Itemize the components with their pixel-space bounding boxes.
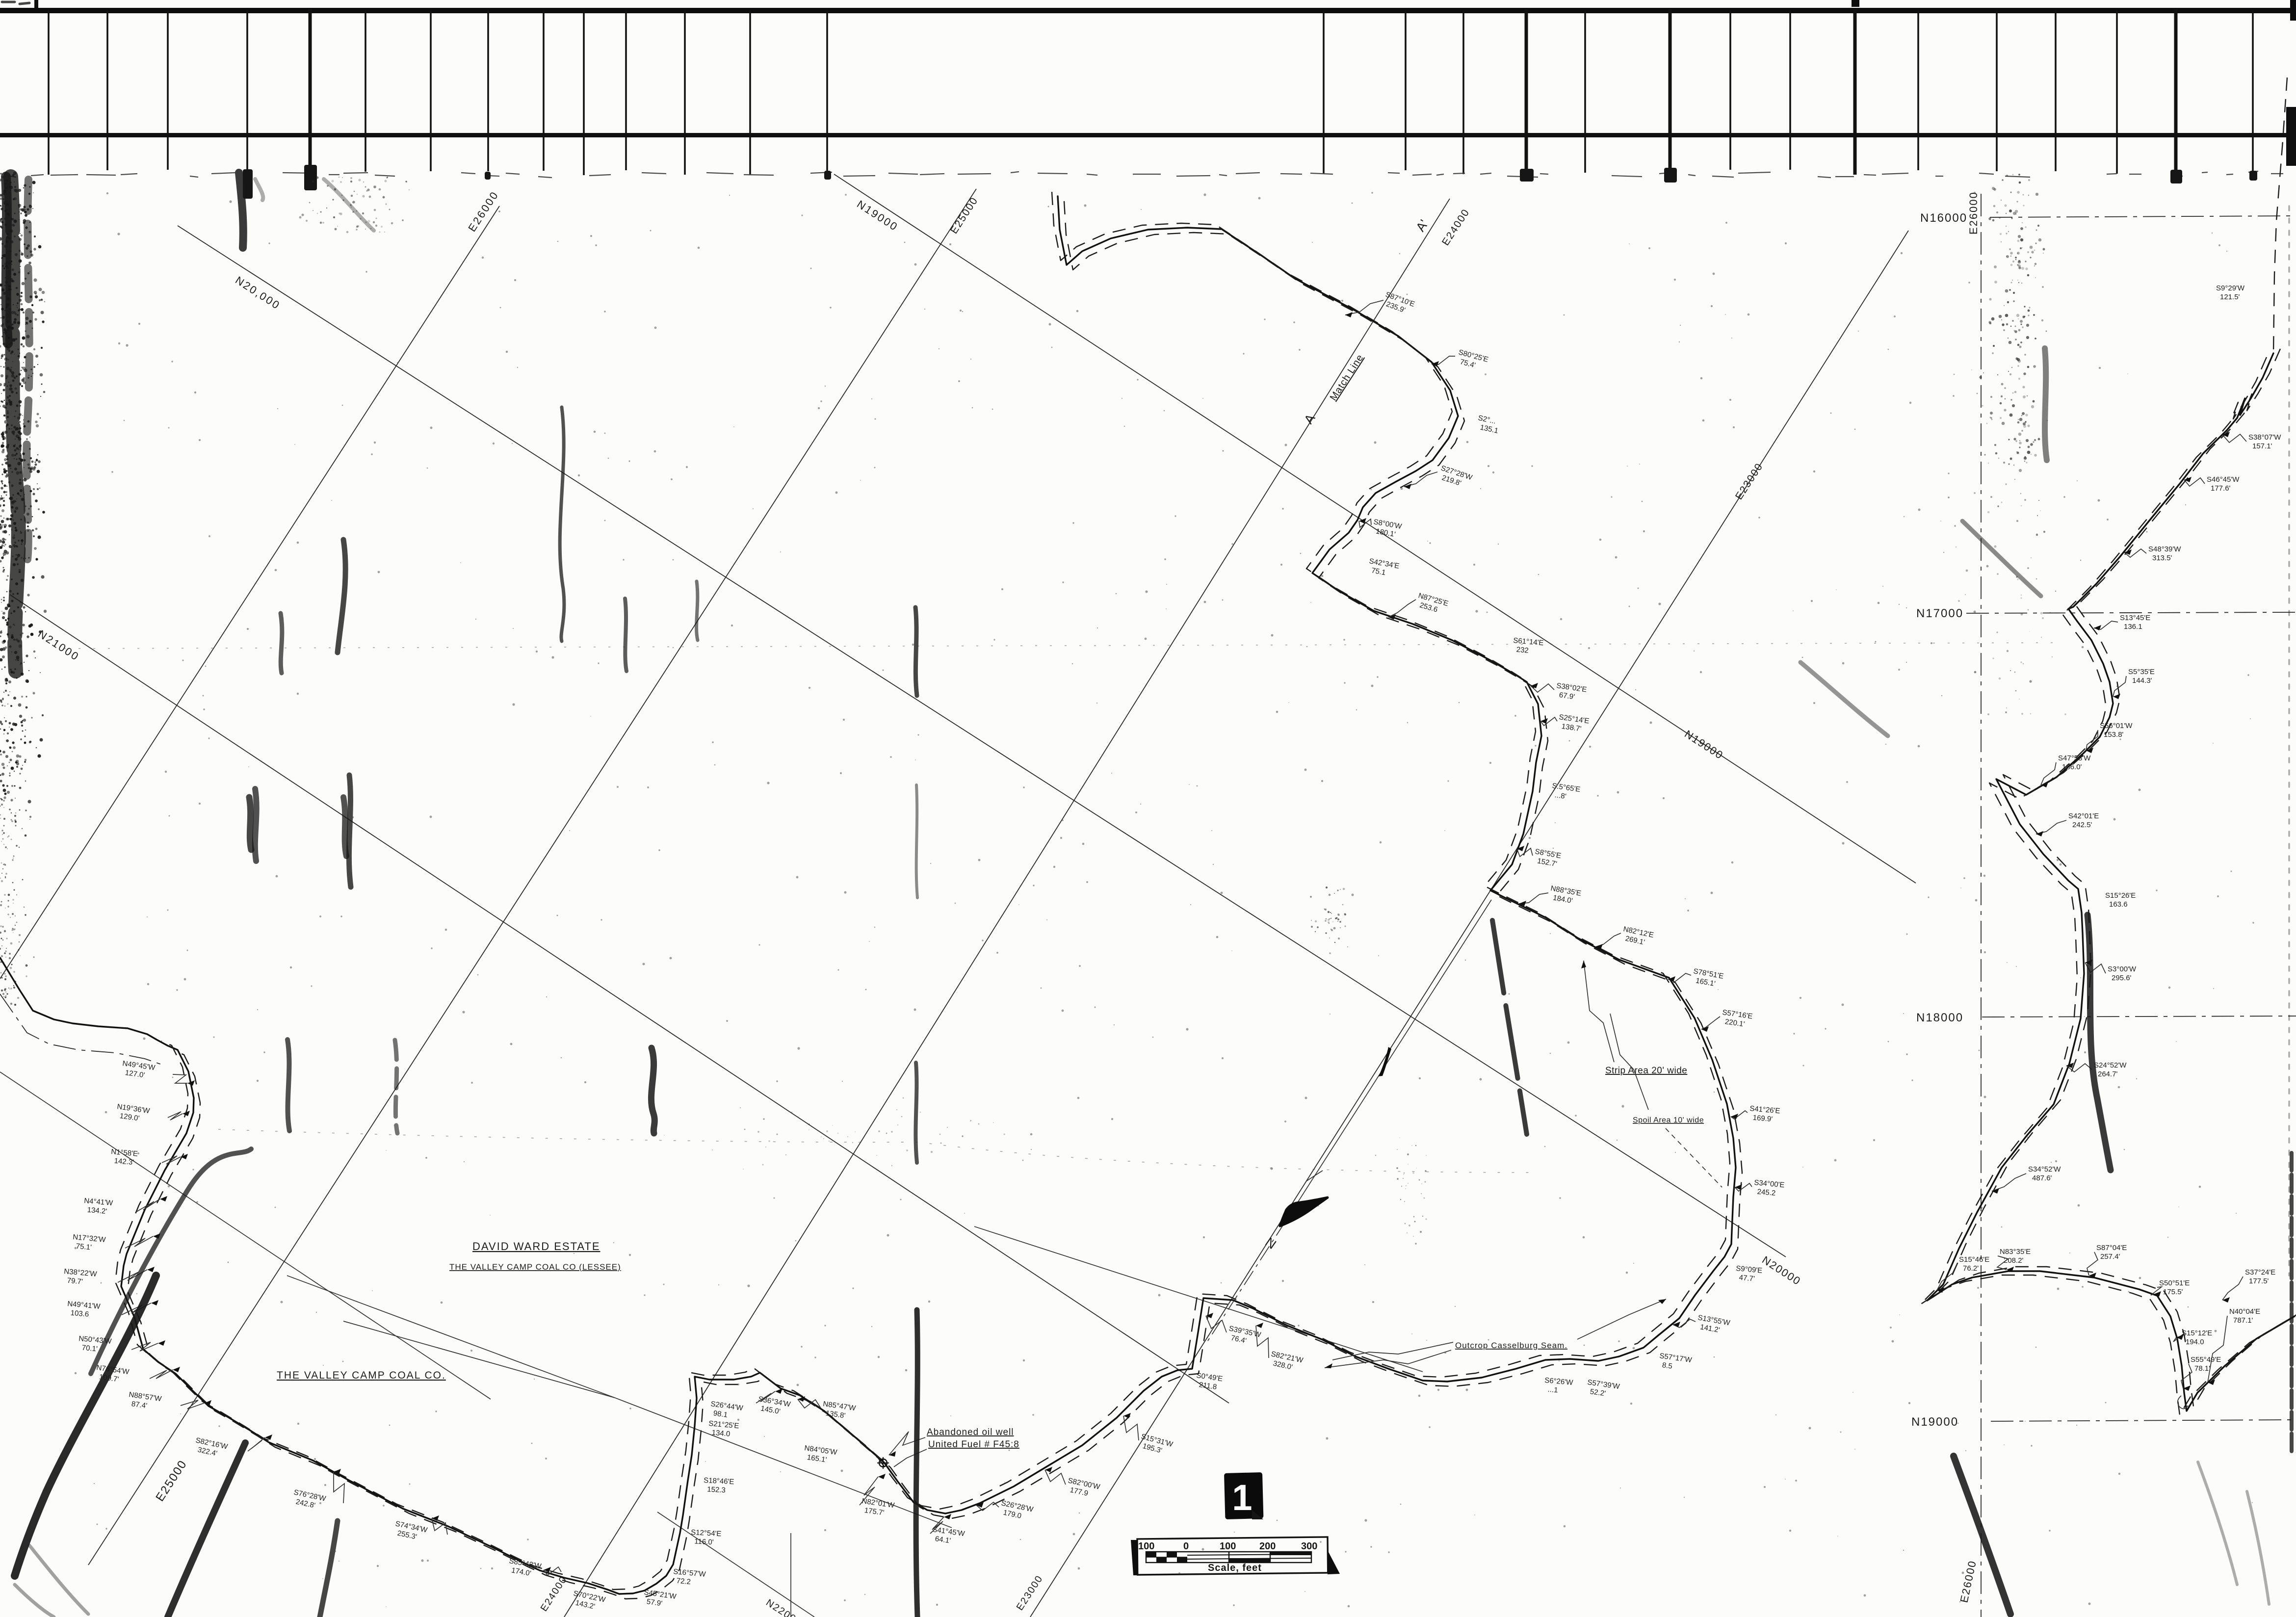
svg-text:S5°35'E144.3': S5°35'E144.3' [2128,668,2155,685]
svg-text:N16000: N16000 [1920,211,1967,225]
svg-text:E26000: E26000 [1967,191,1980,235]
svg-text:Spoil Area 10' wide: Spoil Area 10' wide [1633,1116,1704,1124]
svg-text:THE VALLEY CAMP COAL CO.: THE VALLEY CAMP COAL CO. [277,1370,446,1381]
svg-text:1: 1 [1232,1477,1252,1518]
svg-text:200: 200 [1259,1541,1276,1552]
svg-text:100: 100 [1138,1541,1154,1552]
svg-text:N19000: N19000 [1911,1415,1958,1429]
svg-text:300: 300 [1301,1541,1317,1552]
svg-text:THE VALLEY CAMP COAL CO (: THE VALLEY CAMP COAL CO (LESSEE) [449,1262,621,1272]
svg-text:DAVID WARD ESTATE: DAVID WARD ESTATE [472,1240,600,1252]
svg-text:United Fuel # F45:8: United Fuel # F45:8 [928,1439,1019,1450]
svg-text:Strip Area 20' wide: Strip Area 20' wide [1605,1066,1687,1076]
svg-text:Outcrop Casselburg Seam.: Outcrop Casselburg Seam. [1455,1341,1567,1350]
svg-text:N18000: N18000 [1916,1011,1963,1024]
svg-text:Scale, feet: Scale, feet [1208,1563,1262,1573]
svg-text:N17000: N17000 [1916,607,1963,620]
svg-text:0: 0 [1183,1541,1189,1552]
svg-text:100: 100 [1220,1541,1236,1552]
svg-text:Abandoned oil well: Abandoned oil well [927,1427,1014,1437]
